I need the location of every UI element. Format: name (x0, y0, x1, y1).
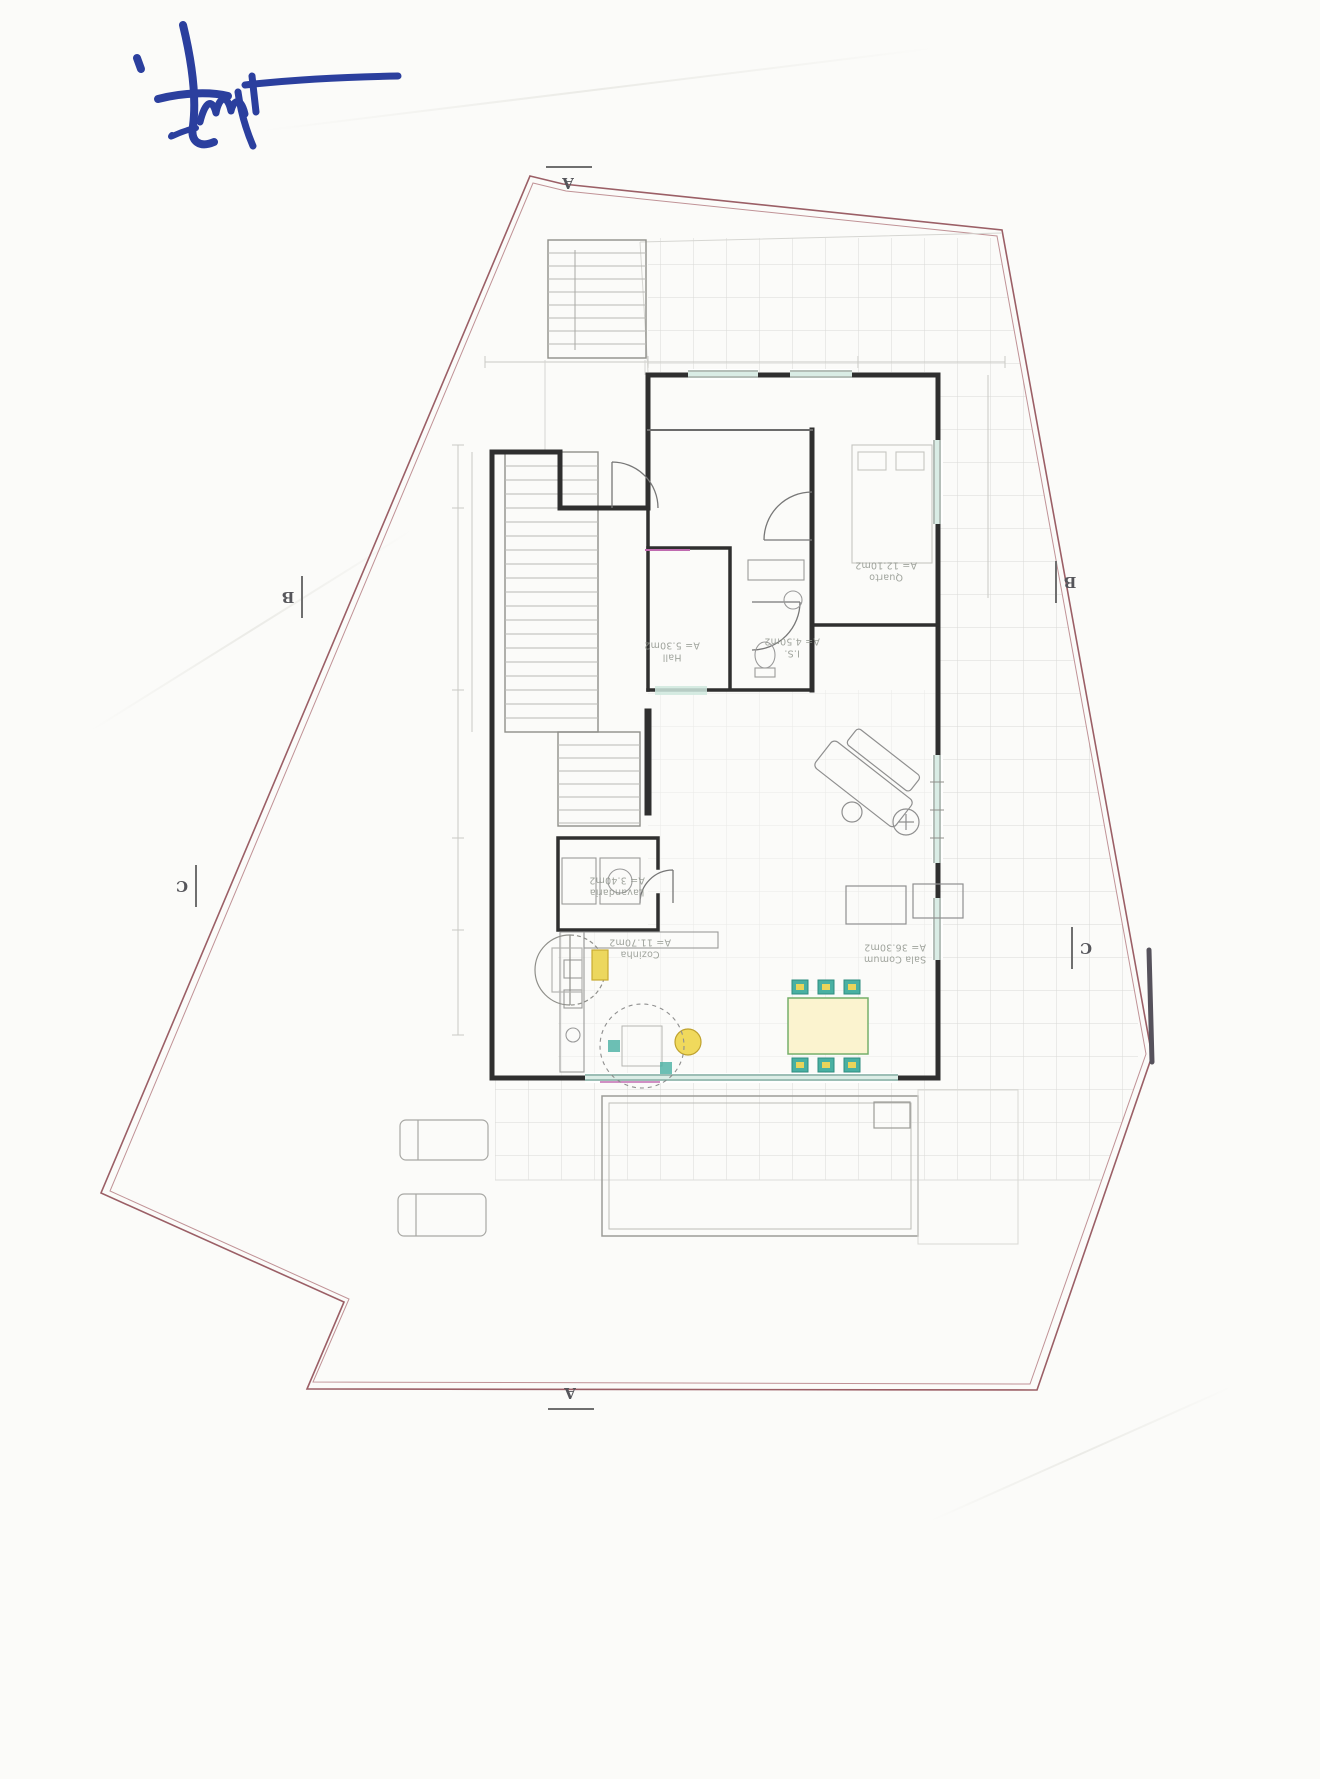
sun-loungers (398, 1120, 488, 1236)
room-area: A= 11.70m2 (609, 935, 671, 947)
room-name: I.S. (764, 646, 820, 658)
room-area: A= 3.40m2 (589, 873, 645, 885)
room-name: Hall (644, 650, 700, 662)
signature-ink (137, 25, 398, 146)
scan-artifact-bar (1149, 950, 1152, 1062)
bedroom-bed (852, 445, 932, 563)
floor-plan-canvas (0, 0, 1320, 1779)
section-marker-a-bottom: A (564, 1384, 576, 1402)
section-marker-b-right: B (1064, 573, 1077, 591)
room-name: Quarto (855, 570, 917, 582)
stairs (505, 240, 646, 826)
room-name: Lavandaria (589, 885, 645, 897)
room-name: Cozinha (609, 947, 671, 959)
room-label-lavandaria: Lavandaria A= 3.40m2 (589, 873, 645, 898)
room-area: A= 5.30m2 (644, 638, 700, 650)
section-marker-a-top: A (562, 174, 574, 192)
room-name: Sala Comum (864, 952, 926, 964)
room-area: A= 12.10m2 (855, 558, 917, 570)
scanned-floor-plan-page: Quarto A= 12.10m2 Hall A= 5.30m2 I.S. A=… (0, 0, 1320, 1779)
bathroom-fixtures (748, 560, 804, 677)
room-label-cozinha: Cozinha A= 11.70m2 (609, 935, 671, 960)
section-marker-c-right: C (1080, 939, 1092, 957)
section-marker-c-left: C (176, 877, 188, 895)
room-label-quarto: Quarto A= 12.10m2 (855, 558, 917, 583)
room-label-is: I.S. A= 4.50m2 (764, 634, 820, 659)
room-area: A= 36.30m2 (864, 940, 926, 952)
room-area: A= 4.50m2 (764, 634, 820, 646)
room-label-sala-comum: Sala Comum A= 36.30m2 (864, 940, 926, 965)
room-label-hall: Hall A= 5.30m2 (644, 638, 700, 663)
section-marker-b-left: B (282, 588, 295, 606)
